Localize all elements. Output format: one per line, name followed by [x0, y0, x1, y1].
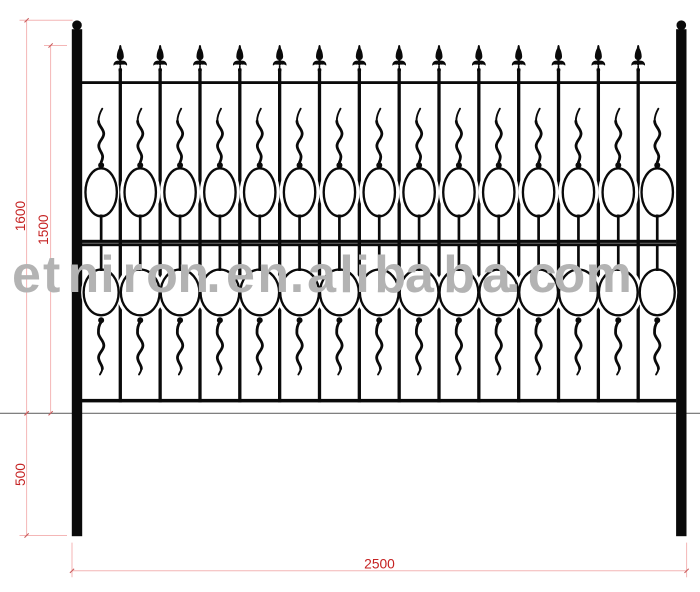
svg-text:1500: 1500 [36, 214, 51, 245]
svg-text:1600: 1600 [13, 200, 28, 231]
svg-text:500: 500 [13, 463, 28, 486]
svg-text:2500: 2500 [364, 557, 395, 572]
svg-text:etniron.en.alibaba.com: etniron.en.alibaba.com [12, 246, 632, 304]
